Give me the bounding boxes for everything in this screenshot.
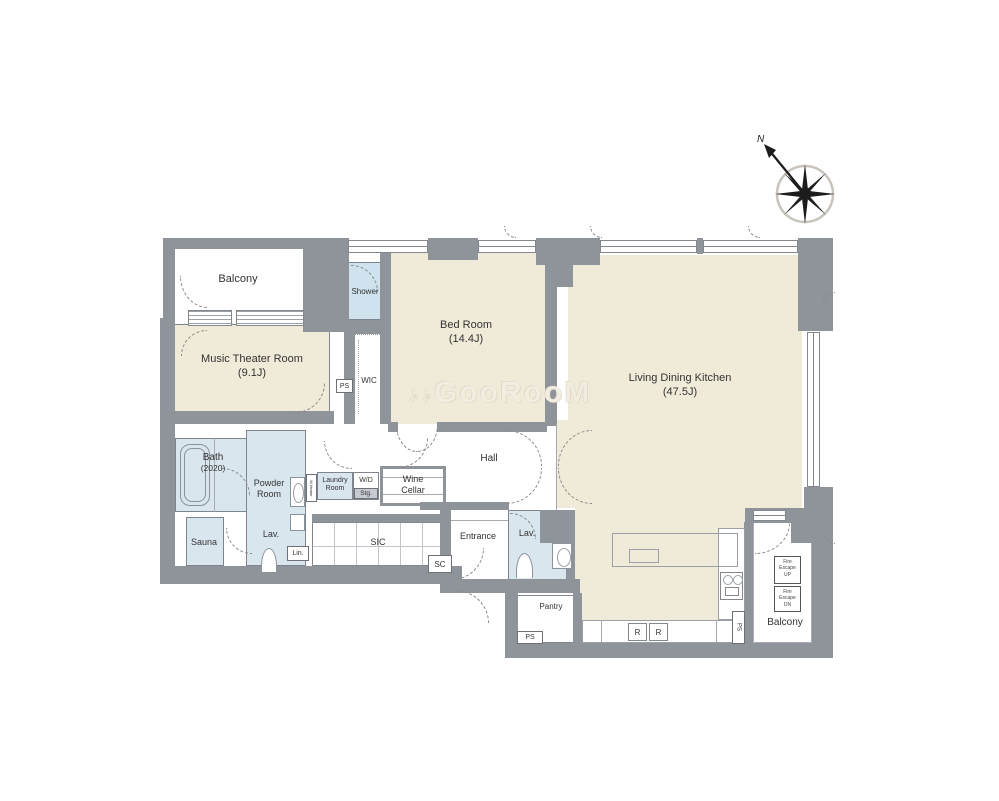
wall-segment	[557, 265, 573, 287]
wall-segment	[798, 238, 833, 331]
counter-divider	[716, 621, 717, 642]
label-ldk: Living Dining Kitchen (47.5J)	[629, 371, 732, 400]
r-label: R	[635, 628, 641, 637]
r-label: R	[656, 628, 662, 637]
wd-storage-chip: Stg.	[354, 488, 378, 499]
fire-escape-text: UP	[775, 572, 800, 578]
door-swing-arc	[226, 528, 252, 554]
window	[807, 332, 820, 487]
ldk-hall-edge	[556, 424, 557, 510]
wall-segment	[303, 238, 349, 332]
window	[600, 240, 697, 253]
wall-segment	[312, 514, 446, 522]
ps-label: PS	[340, 383, 349, 390]
label-hall: Hall	[480, 452, 497, 465]
door-swing-arc	[506, 468, 542, 504]
label-powder-room: Powder Room	[254, 478, 285, 500]
label-bath: Bath (2020)	[201, 452, 226, 473]
sink-bowl	[557, 548, 571, 567]
wall-segment	[428, 238, 478, 260]
room-name: Music Theater Room	[201, 352, 303, 366]
ps-label: PS	[525, 634, 534, 641]
wall-segment	[344, 332, 355, 424]
powder-sink	[290, 477, 305, 507]
room-name: Laundry	[322, 477, 347, 485]
label-pantry: Pantry	[539, 602, 562, 612]
wall-segment	[505, 643, 833, 658]
room-size: (2020)	[201, 464, 226, 474]
water-heater-box: W.Heater	[306, 474, 317, 502]
room-name: Room	[254, 489, 285, 500]
room-name: Cellar	[401, 485, 425, 496]
label-sic: SIC	[370, 537, 385, 549]
watermark-mark: ♪♪	[408, 382, 434, 407]
room-name: Bed Room	[440, 318, 492, 332]
label-entrance: Entrance	[460, 531, 496, 543]
wall-segment	[160, 411, 334, 424]
wall-segment	[160, 566, 462, 584]
label-laundry: Laundry Room	[322, 477, 347, 494]
room-wic-floor	[355, 334, 383, 416]
door-swing-arc	[398, 438, 428, 468]
lin-label: Lin.	[292, 550, 303, 557]
wall-segment	[420, 502, 509, 510]
north-arrow	[769, 150, 805, 194]
burner-icon	[723, 575, 733, 585]
door-swing-arc	[324, 441, 352, 469]
pipe-space-box: PS	[336, 379, 353, 393]
fire-escape-hatch-dn: Fire Escape DN	[774, 586, 801, 612]
wic-hanger-line	[358, 340, 359, 414]
label-wic: WIC	[361, 376, 377, 386]
refrigerator-slot: R	[649, 623, 668, 641]
powder-counter	[290, 514, 305, 531]
label-lavatory-east: Lav.	[519, 528, 535, 540]
label-shower: Shower	[351, 287, 378, 297]
pipe-space-box: PS	[732, 611, 745, 644]
shoe-closet-box: SC	[428, 555, 452, 573]
label-balcony-south: Balcony	[767, 616, 803, 629]
kitchen-island	[612, 533, 738, 567]
label-sauna: Sauna	[191, 537, 217, 549]
floor-plan: R R PS PS PS SC Lin. W.Heater Fire Escap…	[0, 0, 999, 801]
balcony-door-window	[753, 510, 786, 521]
window	[348, 240, 428, 253]
room-name: Bath	[201, 452, 226, 464]
label-balcony-north: Balcony	[218, 272, 257, 286]
room-size: (9.1J)	[201, 366, 303, 380]
door-swing-arc	[506, 430, 542, 466]
room-name: Room	[322, 485, 347, 493]
island-sink	[629, 549, 659, 563]
sc-label: SC	[434, 560, 445, 569]
wall-segment	[573, 593, 582, 644]
oven-icon	[725, 587, 739, 596]
room-size: (14.4J)	[440, 332, 492, 346]
kitchen-counter-bottom: R R	[582, 620, 745, 643]
stg-label: Stg.	[360, 490, 372, 497]
stove	[720, 572, 743, 600]
fire-escape-text: DN	[775, 602, 800, 608]
wall-segment	[812, 508, 833, 651]
room-name: Powder	[254, 478, 285, 489]
wall-segment	[380, 250, 391, 424]
compass-rose: N	[735, 128, 855, 243]
wall-segment	[437, 422, 547, 432]
burner-icon	[733, 575, 743, 585]
room-name: Living Dining Kitchen	[629, 371, 732, 385]
balcony-louver-window	[236, 310, 304, 326]
wall-segment	[163, 238, 315, 249]
linen-closet-box: Lin.	[287, 546, 309, 561]
label-music-theater: Music Theater Room (9.1J)	[201, 352, 303, 381]
watermark-text: GooRooM	[434, 376, 591, 409]
label-lavatory-west: Lav.	[263, 529, 279, 541]
watermark: ♪♪GooRooM	[408, 376, 591, 410]
vent-arc	[504, 226, 516, 238]
wall-segment	[163, 238, 175, 318]
label-wine-cellar: Wine Cellar	[401, 474, 425, 496]
heater-label: W.Heater	[309, 480, 314, 497]
fire-escape-hatch-up: Fire Escape UP	[774, 556, 801, 584]
refrigerator-slot: R	[628, 623, 647, 641]
vent-arc	[590, 226, 602, 238]
balcony-louver-window	[188, 310, 232, 326]
north-label: N	[757, 134, 765, 145]
label-wd-storage: W/D	[359, 476, 373, 485]
ps-label: PS	[736, 623, 742, 631]
room-size: (47.5J)	[629, 385, 732, 399]
door-swing-arc	[455, 590, 489, 623]
wall-segment	[160, 318, 175, 580]
lavatory-sink	[552, 543, 572, 569]
entrance-step-line	[450, 520, 508, 521]
bath-divider	[214, 438, 215, 512]
label-bedroom: Bed Room (14.4J)	[440, 318, 492, 347]
sink-bowl	[293, 483, 304, 503]
wic-folding-door	[348, 334, 382, 335]
counter-divider	[601, 621, 602, 642]
wall-segment	[744, 522, 753, 644]
room-name: Wine	[401, 474, 425, 485]
window	[478, 240, 536, 253]
pipe-space-box: PS	[517, 631, 543, 644]
